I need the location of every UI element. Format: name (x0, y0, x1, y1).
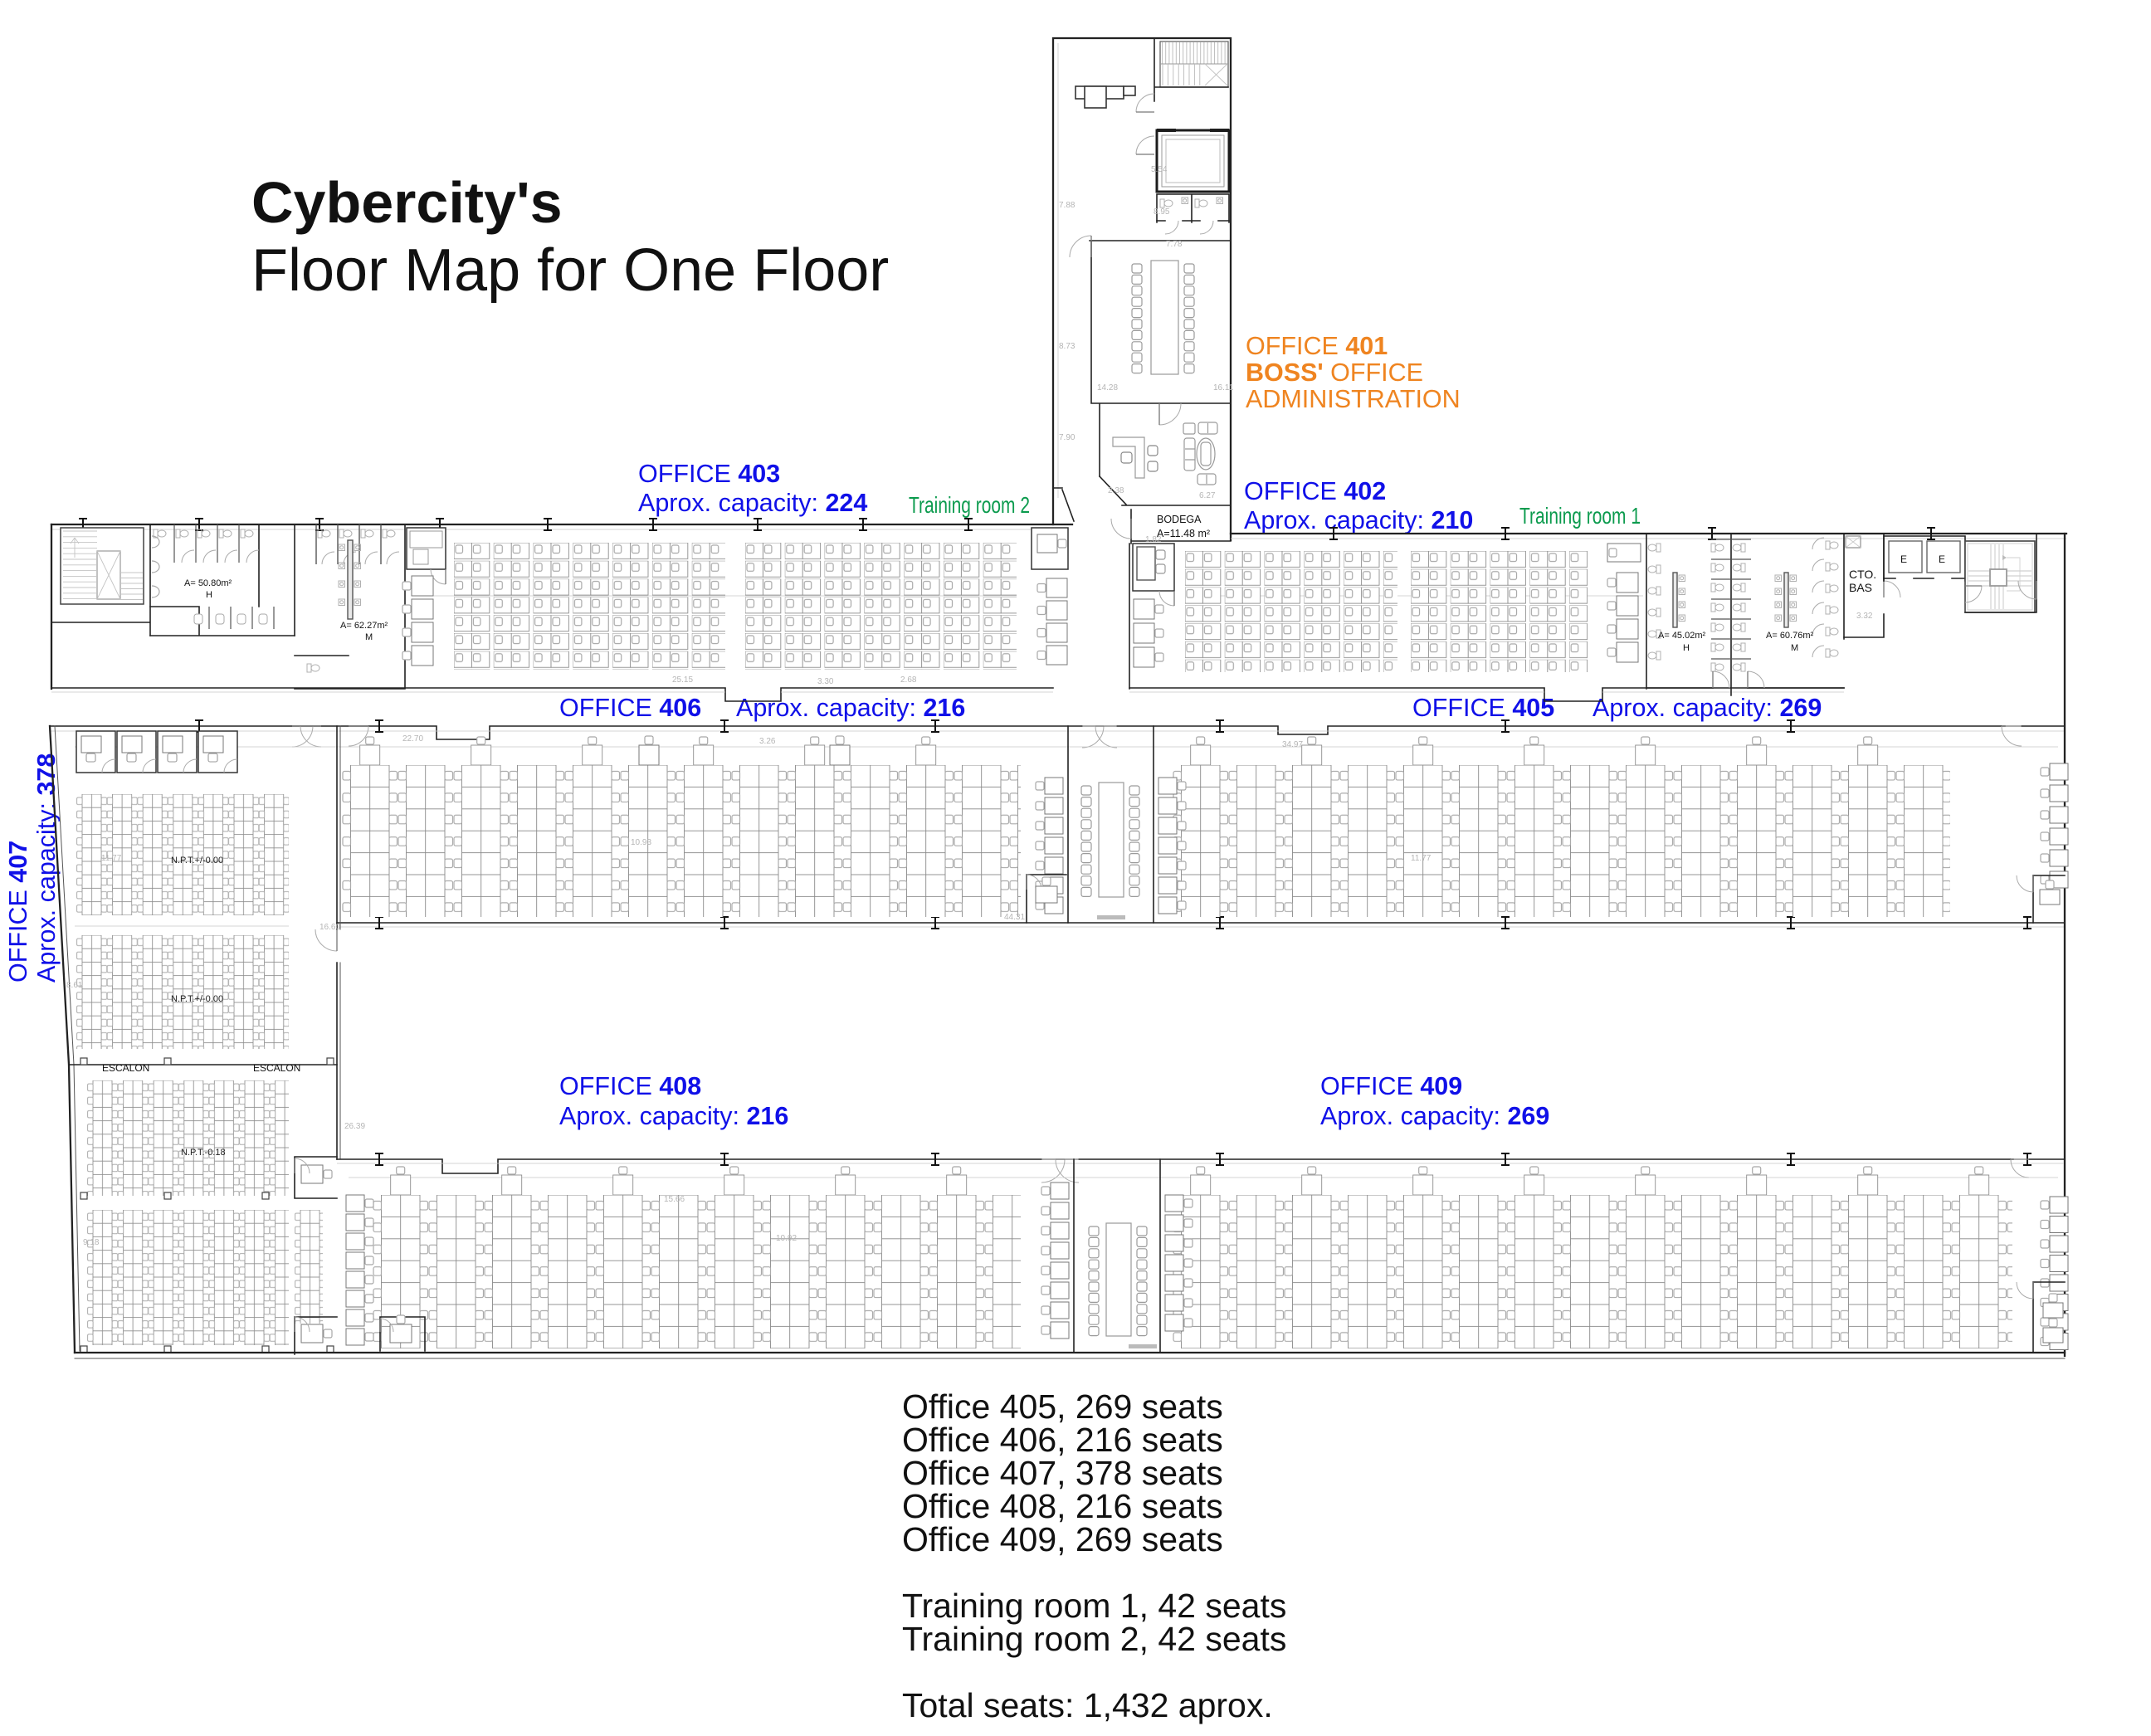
svg-text:OFFICE 408: OFFICE 408 (559, 1072, 701, 1100)
svg-text:11.77: 11.77 (1411, 854, 1432, 863)
svg-text:6.27: 6.27 (1199, 491, 1216, 500)
svg-text:M: M (365, 632, 373, 642)
svg-text:Office 409, 269 seats: Office 409, 269 seats (902, 1520, 1223, 1558)
svg-text:14.28: 14.28 (1097, 383, 1118, 393)
svg-text:16.60: 16.60 (319, 923, 340, 932)
svg-text:1.82: 1.82 (1145, 535, 1162, 544)
svg-text:Aprox. capacity: 210: Aprox. capacity: 210 (1244, 506, 1473, 534)
svg-text:11.77: 11.77 (101, 854, 122, 863)
svg-text:8.61: 8.61 (66, 981, 83, 990)
svg-text:3.30: 3.30 (817, 677, 834, 686)
svg-text:Training room 2, 42 seats: Training room 2, 42 seats (902, 1620, 1286, 1658)
svg-text:OFFICE 402: OFFICE 402 (1244, 477, 1386, 505)
svg-text:3.32: 3.32 (1856, 612, 1873, 621)
svg-text:10.92: 10.92 (776, 1234, 797, 1243)
svg-text:8.95: 8.95 (1154, 207, 1170, 217)
svg-text:OFFICE 401: OFFICE 401 (1246, 332, 1388, 360)
svg-text:Training room 1: Training room 1 (1519, 503, 1641, 529)
svg-text:A= 45.02m²: A= 45.02m² (1658, 631, 1706, 641)
svg-text:10.93: 10.93 (631, 838, 651, 847)
svg-text:N.P.T.-0.18: N.P.T.-0.18 (181, 1148, 226, 1158)
svg-text:M: M (1791, 643, 1798, 653)
svg-text:H: H (206, 590, 212, 600)
svg-text:Total seats: 1,432 aprox.: Total seats: 1,432 aprox. (902, 1686, 1273, 1724)
svg-text:BODEGA: BODEGA (1157, 514, 1202, 525)
svg-text:OFFICE 405Aprox. capacity: 269: OFFICE 405Aprox. capacity: 269 (1412, 694, 1822, 722)
svg-text:26.39: 26.39 (344, 1122, 365, 1131)
svg-text:8.73: 8.73 (1059, 342, 1075, 351)
svg-text:ESCALON: ESCALON (253, 1062, 300, 1074)
svg-text:N.P.T.+/-0.00: N.P.T.+/-0.00 (171, 994, 223, 1004)
svg-text:34.97: 34.97 (1282, 740, 1303, 749)
svg-text:5.54: 5.54 (1151, 165, 1168, 174)
svg-text:BAS: BAS (1849, 581, 1872, 594)
svg-text:A= 60.76m²: A= 60.76m² (1766, 631, 1814, 641)
svg-text:OFFICE 409: OFFICE 409 (1320, 1072, 1462, 1100)
svg-text:Aprox. capacity: 224: Aprox. capacity: 224 (638, 489, 867, 517)
svg-text:Aprox. capacity: 269: Aprox. capacity: 269 (1320, 1102, 1549, 1130)
svg-text:A= 62.27m²: A= 62.27m² (340, 621, 388, 631)
svg-text:H: H (1683, 643, 1690, 653)
svg-text:Training room 2: Training room 2 (909, 492, 1030, 518)
svg-text:7.78: 7.78 (1166, 240, 1183, 249)
svg-text:Aprox. capacity: 378: Aprox. capacity: 378 (32, 753, 61, 983)
svg-text:CTO.: CTO. (1849, 568, 1876, 581)
svg-text:A= 50.80m²: A= 50.80m² (184, 578, 232, 588)
svg-text:ESCALON: ESCALON (102, 1062, 149, 1074)
svg-text:7.88: 7.88 (1059, 201, 1075, 210)
svg-text:2.38: 2.38 (1108, 486, 1124, 495)
svg-text:Cybercity's: Cybercity's (251, 170, 563, 235)
svg-text:OFFICE 406Aprox. capacity: 216: OFFICE 406Aprox. capacity: 216 (559, 694, 965, 722)
svg-text:A=11.48 m²: A=11.48 m² (1157, 528, 1210, 539)
svg-text:BOSS' OFFICE: BOSS' OFFICE (1246, 358, 1423, 387)
svg-text:N.P.T.+/-0.00: N.P.T.+/-0.00 (171, 856, 223, 866)
svg-text:16.11: 16.11 (1213, 383, 1234, 393)
svg-text:OFFICE 407: OFFICE 407 (4, 841, 32, 983)
svg-text:Floor Map for One Floor: Floor Map for One Floor (251, 237, 889, 304)
svg-text:25.15: 25.15 (672, 675, 693, 685)
svg-text:3.26: 3.26 (759, 737, 776, 746)
svg-text:7.90: 7.90 (1059, 433, 1075, 442)
svg-text:22.70: 22.70 (402, 734, 423, 744)
svg-text:9.18: 9.18 (83, 1238, 100, 1247)
svg-text:E: E (1939, 553, 1945, 565)
svg-text:OFFICE 403: OFFICE 403 (638, 460, 780, 488)
svg-text:44.31: 44.31 (1004, 913, 1025, 922)
svg-text:E: E (1900, 553, 1907, 565)
svg-text:2.68: 2.68 (900, 675, 917, 685)
svg-text:Aprox. capacity: 216: Aprox. capacity: 216 (559, 1102, 788, 1130)
svg-text:15.66: 15.66 (664, 1195, 685, 1204)
svg-text:ADMINISTRATION: ADMINISTRATION (1246, 385, 1461, 413)
